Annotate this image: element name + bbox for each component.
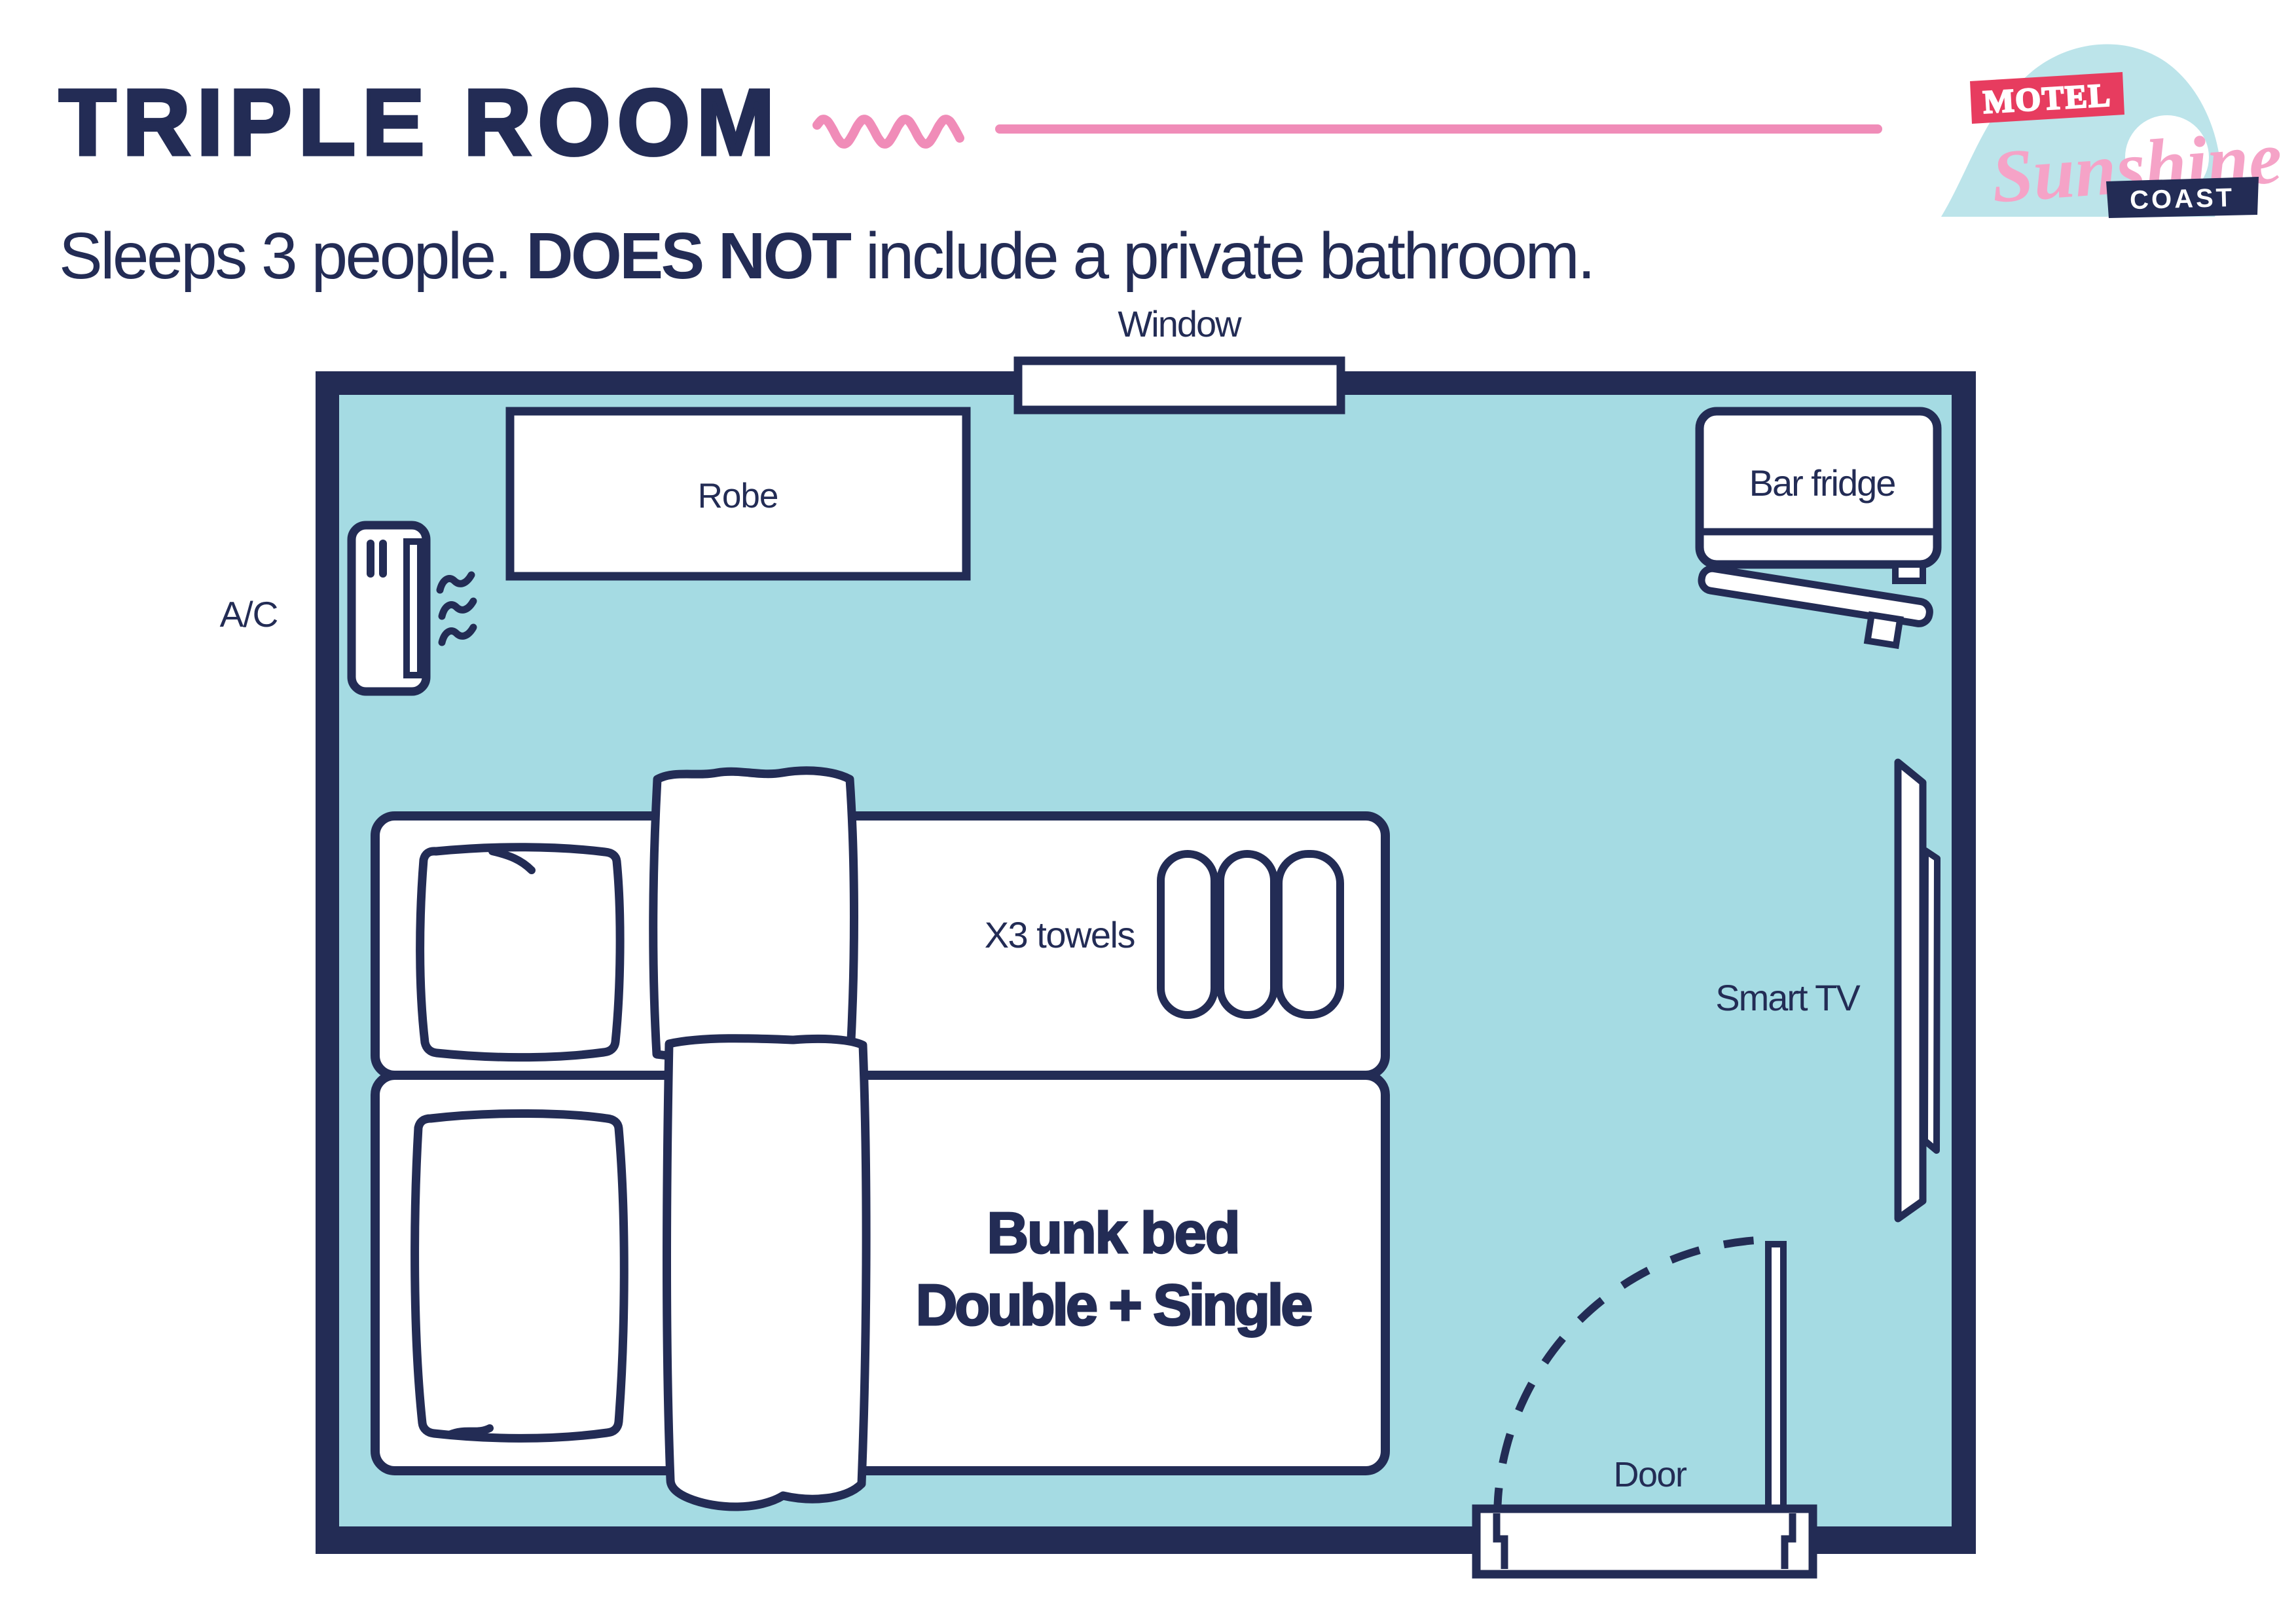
svg-text:Robe: Robe xyxy=(698,477,778,515)
svg-text:Bunk bed: Bunk bed xyxy=(987,1200,1239,1265)
svg-text:X3 towels: X3 towels xyxy=(985,914,1135,955)
svg-text:Sleeps 3 people. DOES NOT incl: Sleeps 3 people. DOES NOT include a priv… xyxy=(59,219,1594,293)
svg-text:Bar fridge: Bar fridge xyxy=(1749,462,1895,504)
svg-text:COAST: COAST xyxy=(2130,183,2235,215)
svg-text:Door: Door xyxy=(1613,1455,1687,1494)
svg-text:Window: Window xyxy=(1118,303,1242,344)
svg-text:Double + Single: Double + Single xyxy=(916,1272,1311,1337)
svg-text:A/C: A/C xyxy=(220,594,278,635)
svg-text:Smart TV: Smart TV xyxy=(1715,977,1861,1018)
svg-text:MOTEL: MOTEL xyxy=(1982,76,2112,120)
svg-text:TRIPLE ROOM: TRIPLE ROOM xyxy=(59,71,781,175)
